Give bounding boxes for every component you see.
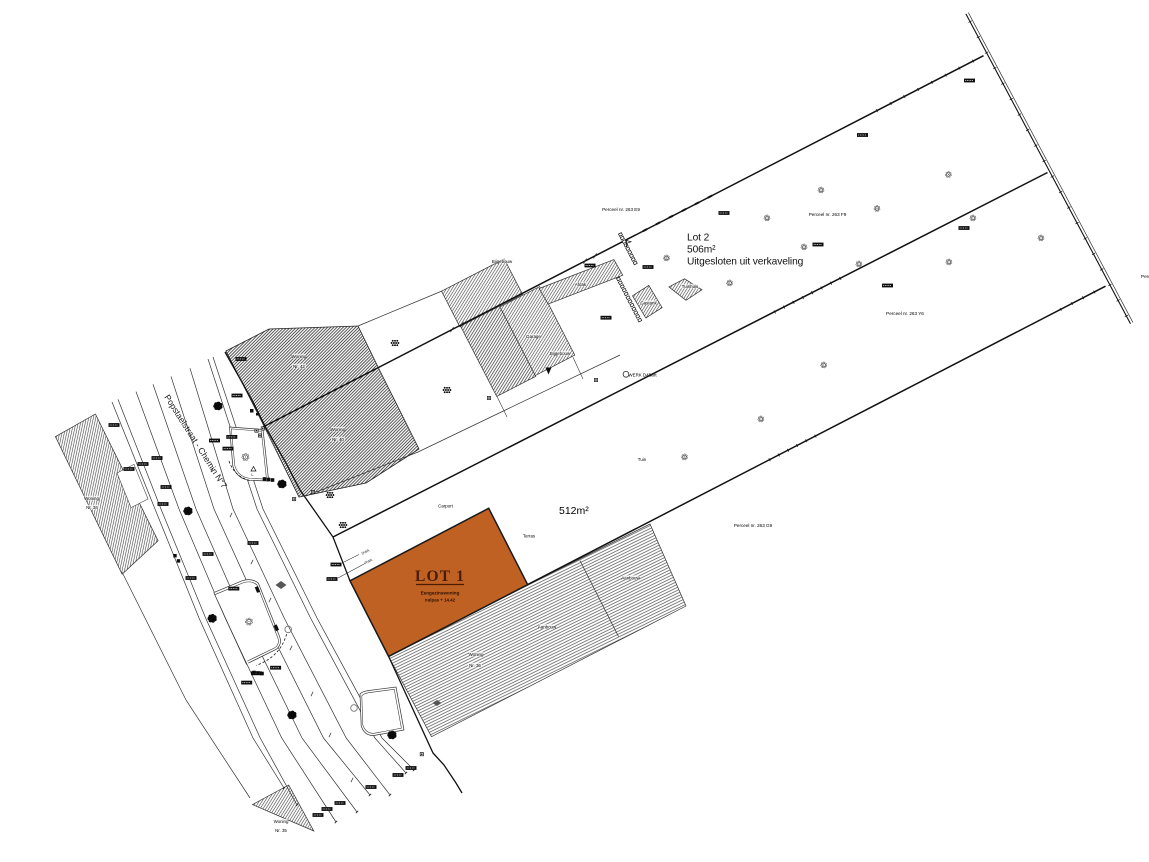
svg-text:506m²: 506m² [687,245,716,256]
svg-text:nulpas + 14.42: nulpas + 14.42 [425,598,456,603]
svg-text:Bijgebouw: Bijgebouw [550,351,571,356]
svg-text:Woning: Woning [84,496,99,501]
svg-text:Eengezinswoning: Eengezinswoning [421,591,460,596]
svg-text:Carport: Carport [438,504,453,509]
svg-text:Perceel nr. 263 F9: Perceel nr. 263 F9 [809,212,847,217]
svg-text:Perceel nr. 263 E9: Perceel nr. 263 E9 [602,207,640,212]
svg-text:Nr. 42: Nr. 42 [293,364,305,369]
svg-text:Woning: Woning [292,354,307,359]
svg-text:Woning: Woning [469,652,484,657]
svg-text:Bijgebouw: Bijgebouw [492,259,513,264]
svg-text:Aanbouw: Aanbouw [538,625,557,630]
svg-text:Afdak: Afdak [575,282,587,287]
svg-text:Aanbouw: Aanbouw [621,576,640,581]
svg-text:512m²: 512m² [559,505,589,517]
svg-text:Nr. 36: Nr. 36 [469,663,481,668]
svg-text:WERK D4Bart: WERK D4Bart [629,373,658,378]
svg-text:LOT 1: LOT 1 [415,568,465,585]
svg-text:Woning: Woning [274,819,289,824]
svg-text:Garage: Garage [526,334,541,339]
svg-text:Lot 2: Lot 2 [687,233,710,244]
svg-text:Perceel nr. 263 G9: Perceel nr. 263 G9 [734,523,773,528]
svg-text:Terras: Terras [523,534,536,539]
svg-text:Tuinhuis: Tuinhuis [682,284,699,289]
svg-text:Gastank: Gastank [640,301,657,306]
svg-text:Nr. 34: Nr. 34 [86,505,98,510]
svg-text:Perceel nr. 263 Y6: Perceel nr. 263 Y6 [886,311,924,316]
svg-text:Uitgesloten uit verkaveling: Uitgesloten uit verkaveling [687,257,804,268]
svg-text:Tuin: Tuin [638,457,647,462]
svg-text:Woning: Woning [331,427,346,432]
svg-text:Nr. 35: Nr. 35 [275,828,287,833]
svg-text:Perceel nr: Perceel nr [1141,274,1149,279]
svg-text:Nr. 40: Nr. 40 [332,437,344,442]
